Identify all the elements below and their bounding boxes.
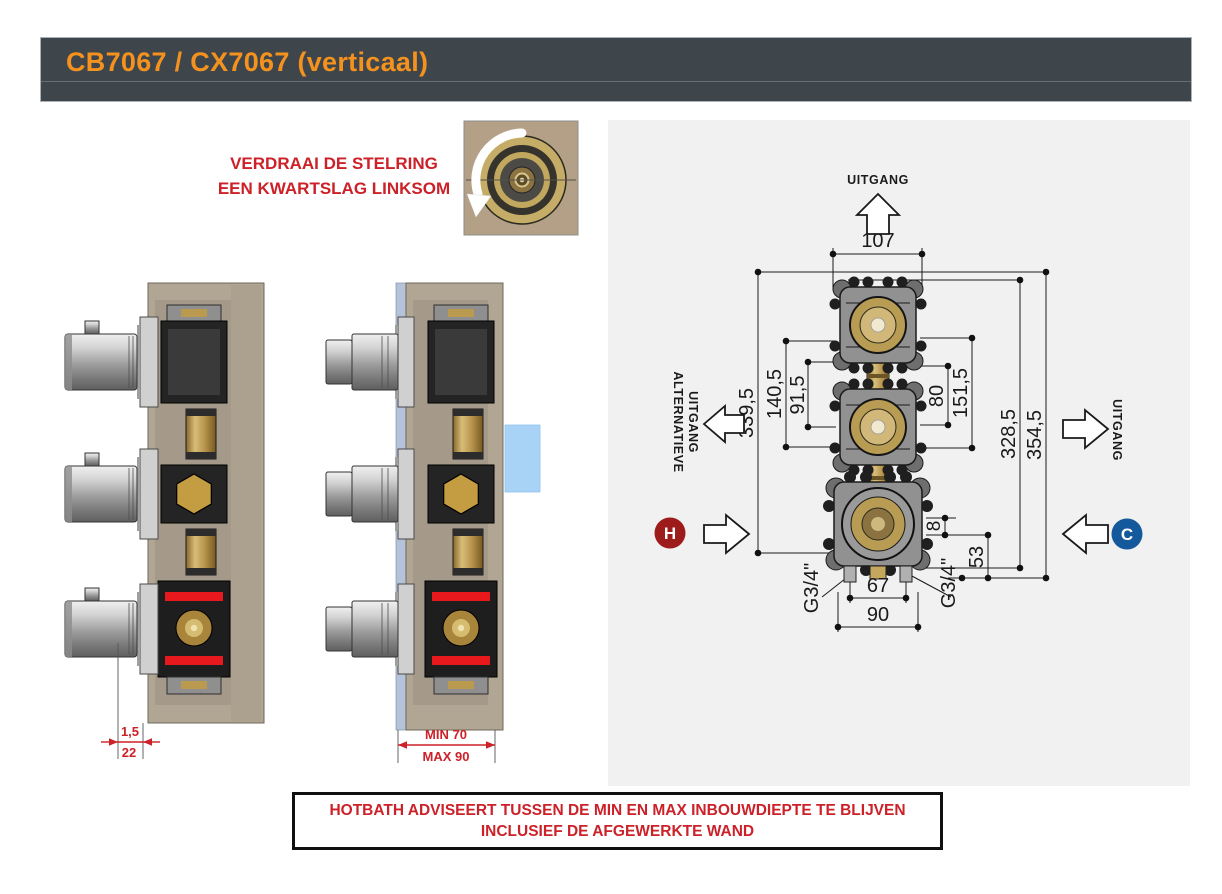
valve-body-section [425,305,497,694]
outlet-right-label: UITGANG [1110,399,1124,461]
cross-section-middle: MIN 70 MAX 90 [318,275,548,775]
header-bar: CB7067 / CX7067 (verticaal) [40,37,1192,102]
valve-body-section [158,305,230,694]
arrow-right-icon [1063,410,1108,448]
handle-bottom [65,584,158,674]
dim-max-depth: MAX 90 [423,749,470,764]
page-title: CB7067 / CX7067 (verticaal) [66,47,428,78]
dim-8: 8 [924,521,945,532]
dim-328-5: 328,5 [998,409,1020,459]
handle-bottom [326,584,414,674]
alt-outlet-label-line2: UITGANG [686,391,700,453]
dim-80: 80 [926,385,948,407]
advisory-line1: HOTBATH ADVISEERT TUSSEN DE MIN EN MAX I… [329,800,905,821]
dim-90: 90 [867,604,889,626]
port-g34-left [844,566,856,582]
hot-arrow-right-icon [704,515,749,553]
stelring-figure [463,120,579,236]
red-seal-stripe [165,592,223,601]
hot-badge-label: H [664,524,676,543]
dim-min-depth: MIN 70 [425,727,467,742]
cross-section-left: 1,5 22 [55,275,280,775]
advisory-line2: INCLUSIEF DE AFGEWERKTE WAND [481,821,754,842]
arrow-up-icon [857,194,899,234]
dimension-diagram: 107 339,5 140,5 91,5 80 151,5 328,5 354,… [608,120,1190,786]
handle-middle [326,449,414,539]
dim-91-5: 91,5 [787,376,809,415]
port-g34-right [900,566,912,582]
handle-top [65,317,158,407]
dim-53: 53 [966,546,988,568]
handles [326,317,414,674]
mounting-depth-dimension: MIN 70 MAX 90 [398,727,495,764]
dim-151-5: 151,5 [950,368,972,418]
dim-354-5: 354,5 [1024,410,1046,460]
stelring-instruction-line1: VERDRAAI DE STELRING [200,151,468,176]
red-seal-stripe [165,656,223,665]
cold-badge-label: C [1121,525,1133,544]
outlet-top-label: UITGANG [847,173,909,187]
valve-module-top [830,277,927,374]
dim-g34-left: G3/4" [801,563,823,613]
dim-plate-thickness: 1,5 [121,724,139,739]
handle-top [326,317,414,407]
stelring-instruction-line2: EEN KWARTSLAG LINKSOM [200,176,468,201]
red-seal-stripe [432,656,490,665]
valve-module-middle [830,379,927,476]
header-divider [41,81,1191,82]
dim-67: 67 [867,575,889,597]
handle-middle [65,449,158,539]
depth-highlight-marker [505,425,540,492]
dim-140-5: 140,5 [764,369,786,419]
advisory-box: HOTBATH ADVISEERT TUSSEN DE MIN EN MAX I… [292,792,943,850]
dim-g34-right: G3/4" [938,558,960,608]
handles [65,317,158,674]
spec-sheet-page: CB7067 / CX7067 (verticaal) VERDRAAI DE … [0,0,1222,894]
red-seal-stripe [432,592,490,601]
cold-arrow-left-icon [1063,515,1108,553]
valve-module-bottom [823,471,933,582]
dim-wall-thickness: 22 [122,745,136,760]
alt-outlet-label-line1: ALTERNATIEVE [671,371,685,472]
stelring-instruction: VERDRAAI DE STELRING EEN KWARTSLAG LINKS… [200,151,468,201]
dimension-diagram-panel: 107 339,5 140,5 91,5 80 151,5 328,5 354,… [608,120,1190,786]
